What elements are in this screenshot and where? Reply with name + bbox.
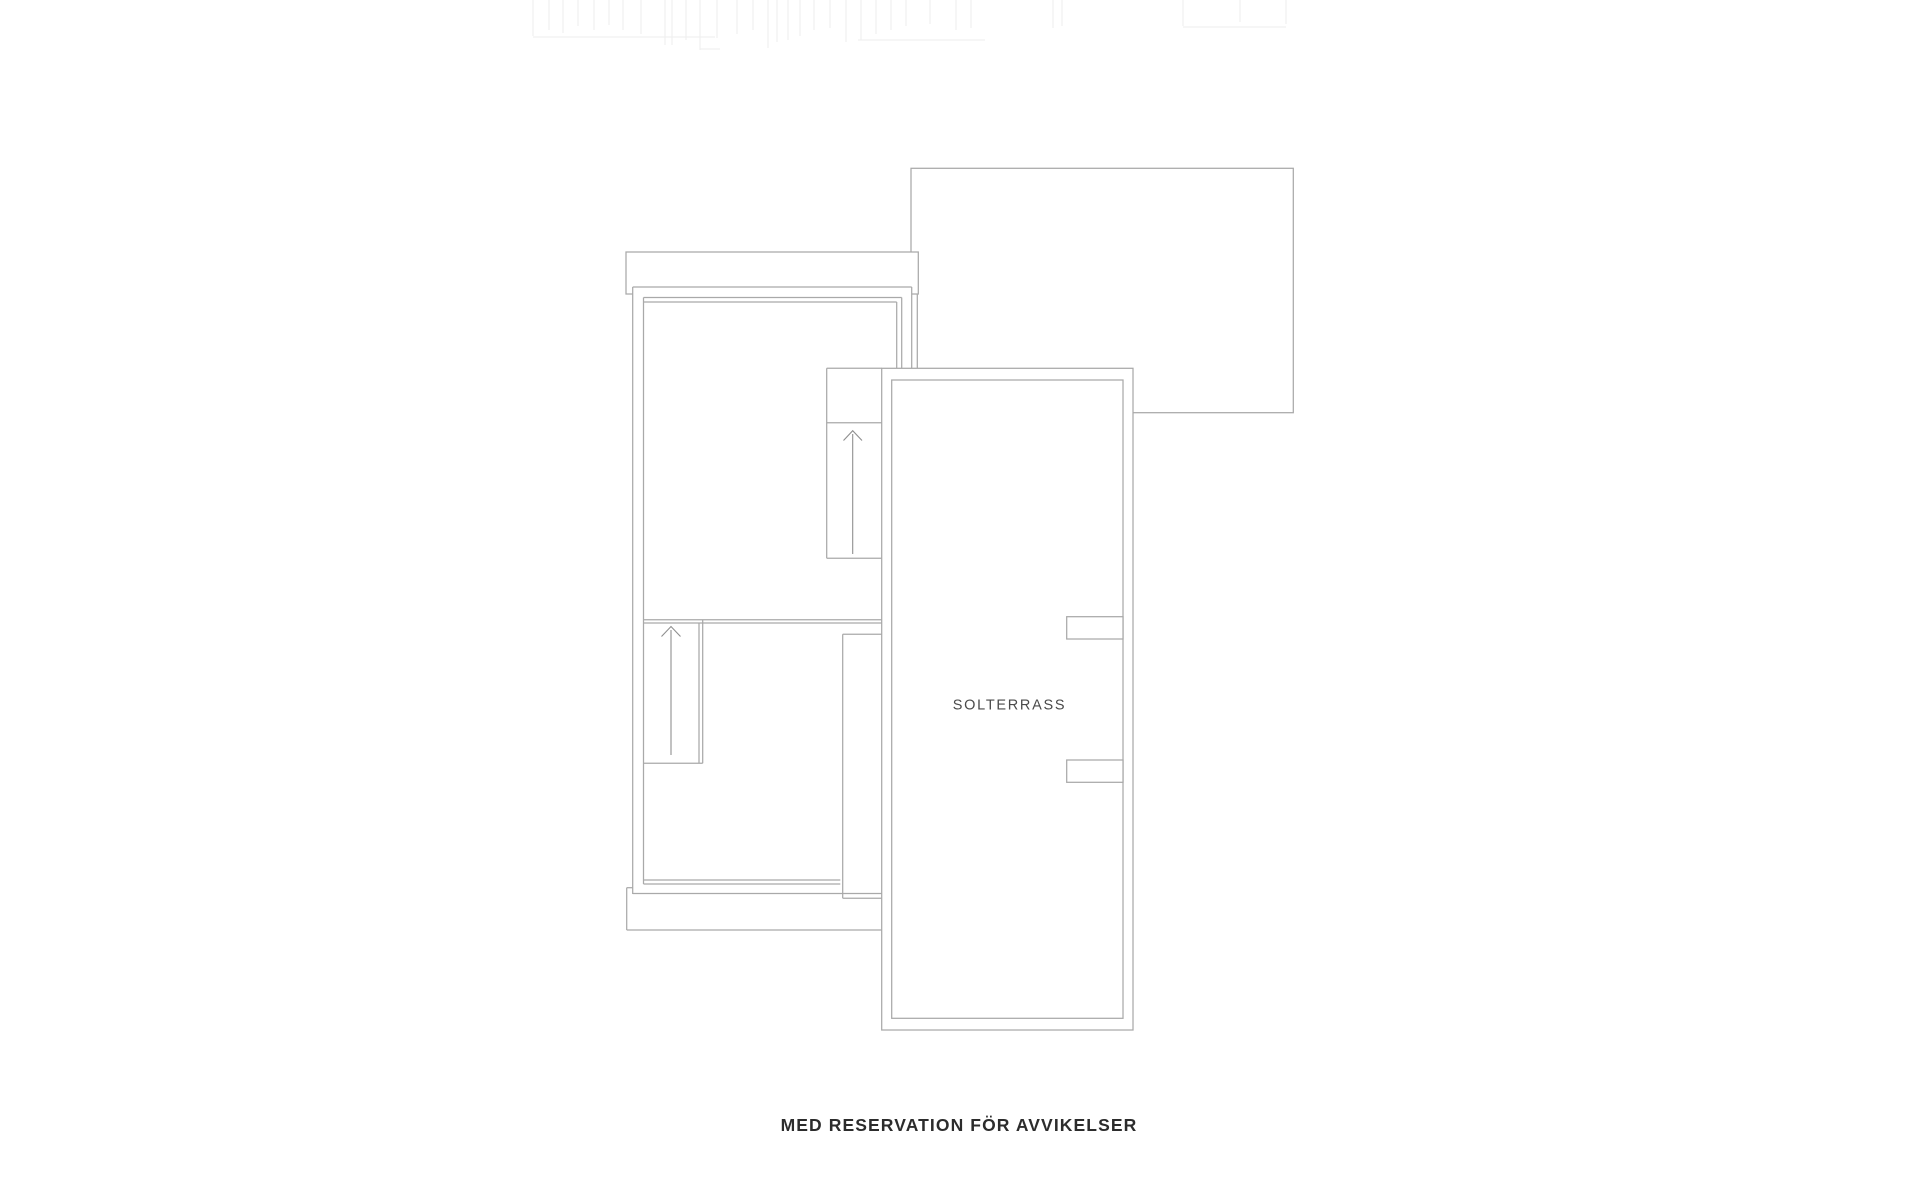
room-label-solterrass: SOLTERRASS: [953, 698, 1066, 714]
ghost-linework: [533, 0, 1286, 50]
plan-linework: [626, 168, 1293, 1030]
floor-plan-page: SOLTERRASS MED RESERVATION FÖR AVVIKELSE…: [0, 0, 1920, 1200]
floor-plan: SOLTERRASS MED RESERVATION FÖR AVVIKELSE…: [0, 0, 1920, 1200]
disclaimer-text: MED RESERVATION FÖR AVVIKELSER: [781, 1115, 1138, 1135]
terrace-pillar-lower: [1067, 760, 1123, 782]
terrace-pillar-upper: [1067, 617, 1123, 639]
house-body-fill: [627, 287, 912, 930]
